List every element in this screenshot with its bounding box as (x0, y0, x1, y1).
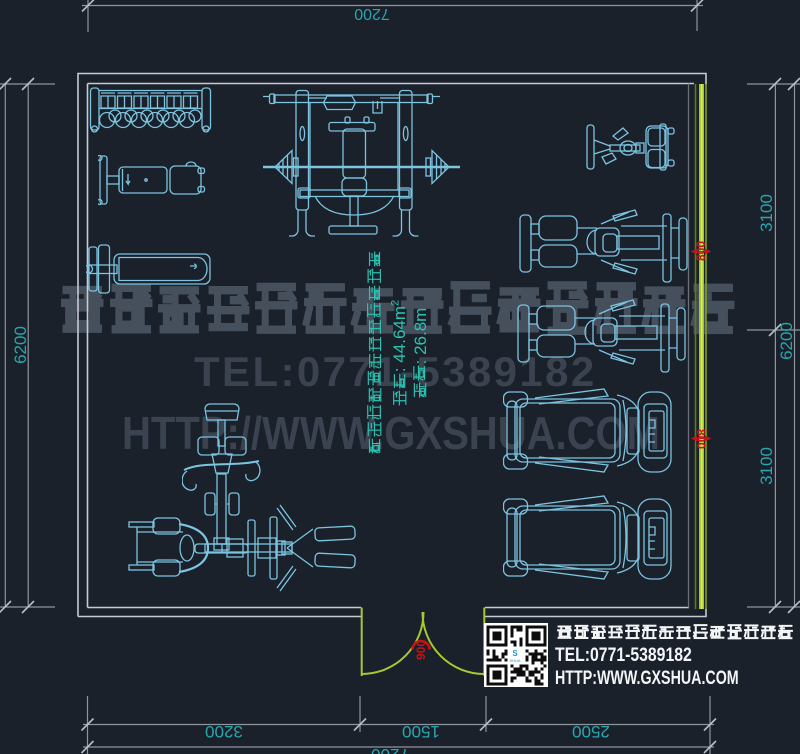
svg-text:S: S (512, 649, 518, 658)
svg-text:SHUA: SHUA (509, 658, 520, 663)
